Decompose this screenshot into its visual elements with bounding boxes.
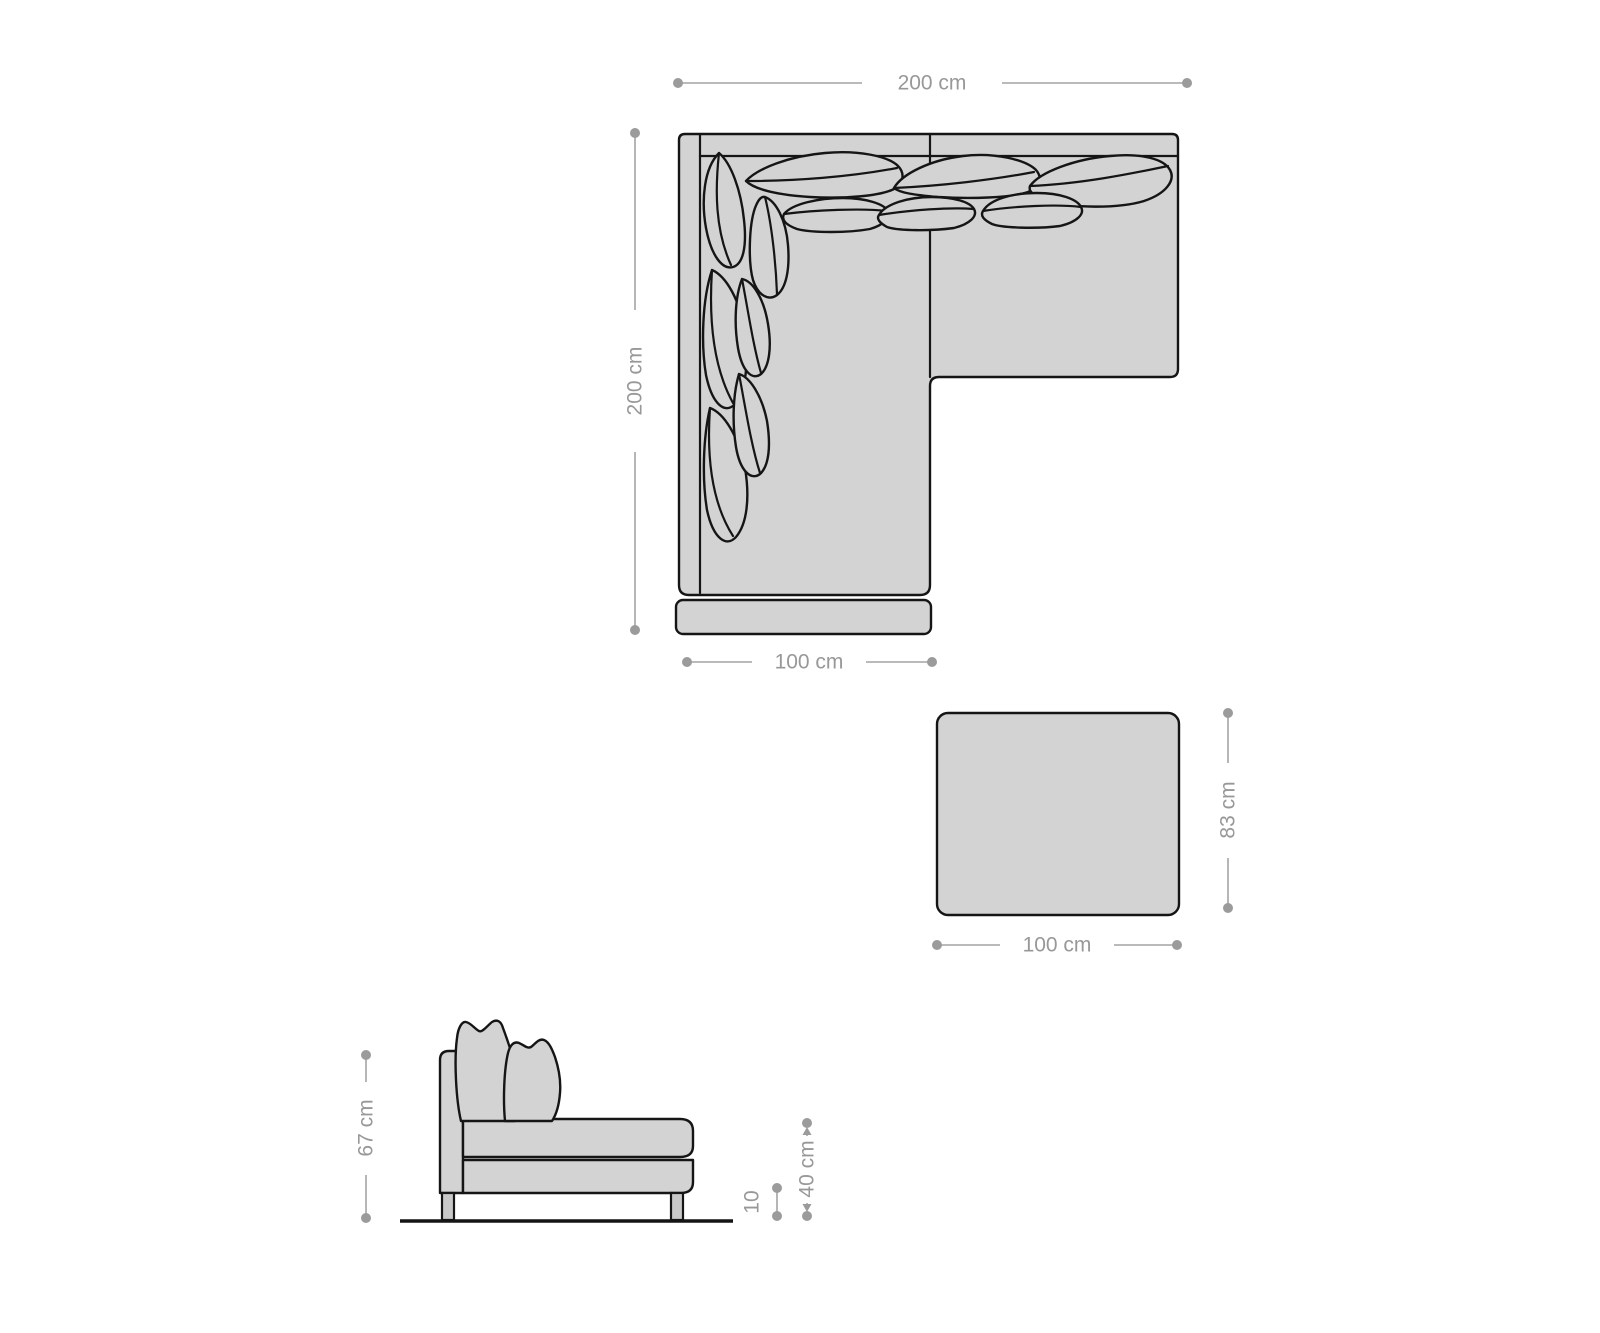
dim-chaise-width-label: 100 cm xyxy=(775,651,844,674)
dim-ottoman-width: 100 cm xyxy=(932,934,1182,957)
sofa-side-view xyxy=(400,1021,733,1221)
ottoman-top-view xyxy=(937,713,1179,915)
sofa-top-view xyxy=(676,134,1178,634)
dim-sofa-depth: 200 cm xyxy=(624,128,647,635)
side-leg-right xyxy=(671,1193,683,1220)
dim-chaise-width: 100 cm xyxy=(682,651,937,674)
dim-sofa-height-label: 67 cm xyxy=(355,1099,378,1156)
dim-sofa-depth-label: 200 cm xyxy=(624,347,647,416)
front-cushions-top xyxy=(783,193,1082,232)
dim-seat-height: 40 cm xyxy=(796,1118,819,1221)
ottoman-body xyxy=(937,713,1179,915)
dim-leg-height-label: 10 xyxy=(741,1190,764,1213)
dim-sofa-height: 67 cm xyxy=(355,1050,378,1223)
side-leg-left xyxy=(442,1193,454,1220)
side-seat-cushion xyxy=(463,1119,693,1157)
dim-leg-height: 10 xyxy=(741,1183,783,1221)
dimension-diagram: 200 cm 200 cm 100 cm 83 cm 100 cm xyxy=(0,0,1600,1333)
dim-ottoman-depth: 83 cm xyxy=(1217,708,1240,913)
dim-sofa-width-label: 200 cm xyxy=(898,72,967,95)
dim-ottoman-width-label: 100 cm xyxy=(1023,934,1092,957)
dim-seat-height-label: 40 cm xyxy=(796,1140,819,1197)
sofa-front-element xyxy=(676,600,931,634)
side-back-pillows xyxy=(456,1021,561,1121)
dim-sofa-width: 200 cm xyxy=(673,72,1192,95)
side-base xyxy=(463,1160,693,1193)
dim-ottoman-depth-label: 83 cm xyxy=(1217,781,1240,838)
